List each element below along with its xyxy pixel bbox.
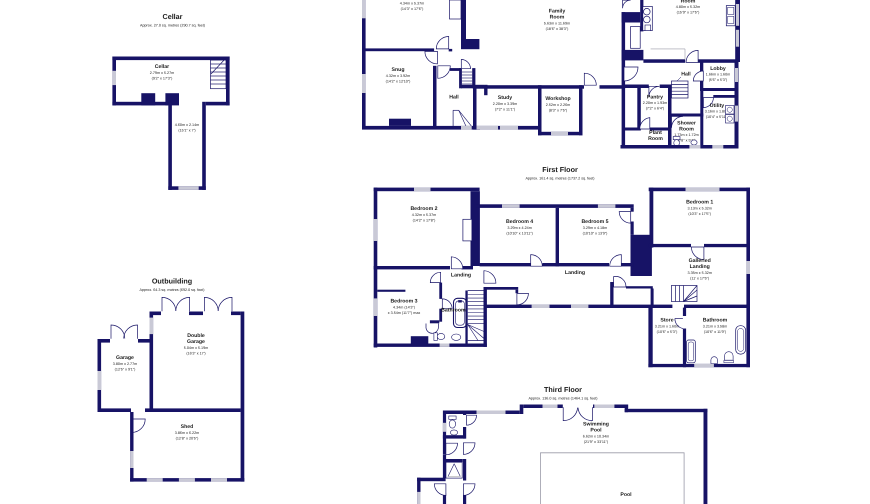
svg-text:Pool: Pool [590,428,602,434]
svg-text:Room: Room [681,0,696,5]
svg-text:5.04m x 5.19m: 5.04m x 5.19m [184,346,208,350]
svg-text:Hall: Hall [449,94,459,100]
svg-text:3.86m x 6.22m: 3.86m x 6.22m [175,431,199,435]
svg-text:Room: Room [550,15,565,21]
svg-text:Landing: Landing [451,273,471,279]
svg-text:Shed: Shed [181,424,194,430]
svg-text:(10'10" x 13'11"): (10'10" x 13'11") [506,232,533,236]
svg-text:(7'2" x 6'4"): (7'2" x 6'4") [646,107,665,111]
svg-text:3.35m x 5.32m: 3.35m x 5.32m [688,271,712,275]
svg-text:Bedroom 4: Bedroom 4 [506,219,533,225]
svg-text:Bathroom: Bathroom [441,308,466,314]
svg-text:Approx. 161.4 sq. metres (1737: Approx. 161.4 sq. metres (1737.2 sq. fee… [525,177,594,181]
svg-text:Utility: Utility [710,103,725,109]
svg-text:2.20m x 3.39m: 2.20m x 3.39m [493,102,517,106]
svg-text:2.52m x 2.26m: 2.52m x 2.26m [546,103,570,107]
svg-text:5.63m x 11.69m: 5.63m x 11.69m [544,22,570,26]
svg-text:(14'3" x 17'6"): (14'3" x 17'6") [401,7,424,11]
svg-text:(15'1" x 7'): (15'1" x 7') [178,129,195,133]
svg-text:Lobby: Lobby [710,66,726,72]
svg-text:4.32m x 3.92m: 4.32m x 3.92m [386,74,410,78]
svg-text:Garage: Garage [116,355,134,361]
svg-text:Landing: Landing [565,270,585,276]
svg-text:(8'3" x 7'5"): (8'3" x 7'5") [549,109,568,113]
svg-text:Third Floor: Third Floor [544,385,582,394]
svg-text:(11' x 17'5"): (11' x 17'5") [690,277,709,281]
svg-text:Store: Store [660,318,673,324]
svg-text:3.13m x 5.32m: 3.13m x 5.32m [688,207,712,211]
svg-text:(10'3" x 17'5"): (10'3" x 17'5") [688,212,711,216]
svg-text:4.34m (14'3"): 4.34m (14'3") [393,306,415,310]
svg-text:3.29m x 4.24m: 3.29m x 4.24m [507,226,531,230]
svg-text:3.80m x 2.77m: 3.80m x 2.77m [113,362,137,366]
svg-text:(9'2" x 17'3"): (9'2" x 17'3") [152,77,173,81]
svg-text:2.20m x 1.93m: 2.20m x 1.93m [643,101,667,105]
svg-text:(18'6" x 38'3"): (18'6" x 38'3") [546,27,569,31]
svg-text:First Floor: First Floor [542,165,578,174]
svg-text:Hall: Hall [681,72,691,78]
svg-text:4.32m x 5.37m: 4.32m x 5.37m [412,213,436,217]
svg-text:Snug: Snug [392,67,405,73]
svg-text:(10'6" x 11'9"): (10'6" x 11'9") [704,330,726,334]
svg-text:3.21m x 1.60m: 3.21m x 1.60m [655,325,679,329]
svg-text:Outbuilding: Outbuilding [152,277,192,286]
svg-text:Bedroom 3: Bedroom 3 [390,299,417,305]
svg-text:Bedroom 1: Bedroom 1 [686,200,713,206]
svg-text:1.66m x 1.60m: 1.66m x 1.60m [706,73,730,77]
svg-text:Approx. 64.3 sq. metres (692.0: Approx. 64.3 sq. metres (692.0 sq. feet) [140,288,205,292]
svg-text:Bedroom 2: Bedroom 2 [410,206,437,212]
svg-text:Approx. 27.0 sq. metres (290.7: Approx. 27.0 sq. metres (290.7 sq. feet) [140,24,205,28]
svg-text:6.62m x 10.34m: 6.62m x 10.34m [583,435,609,439]
svg-text:(7'2" x 11'1"): (7'2" x 11'1") [495,108,515,112]
svg-text:Bathroom: Bathroom [703,318,728,324]
svg-text:Study: Study [498,95,513,101]
svg-text:(14'2" x 17'8"): (14'2" x 17'8") [413,219,436,223]
svg-text:Workshop: Workshop [545,96,570,102]
svg-text:(10'6" x 5'3"): (10'6" x 5'3") [657,330,678,334]
svg-text:x 3.54m (11'7") max: x 3.54m (11'7") max [388,311,421,315]
svg-text:(10'4" x 5'11"): (10'4" x 5'11") [706,115,728,119]
svg-text:4.60m x 2.14m: 4.60m x 2.14m [175,123,199,127]
svg-text:(15'9" x 17'5"): (15'9" x 17'5") [677,11,700,15]
svg-text:(5'6" x 5'3"): (5'6" x 5'3") [709,78,728,82]
svg-text:2.79m x 5.27m: 2.79m x 5.27m [150,71,174,75]
svg-text:(12'5" x 9'1"): (12'5" x 9'1") [115,368,136,372]
svg-text:Bedroom 5: Bedroom 5 [581,219,608,225]
svg-text:(14'2" x 12'10"): (14'2" x 12'10") [386,80,411,84]
svg-text:(12'8" x 20'5"): (12'8" x 20'5") [176,437,199,441]
svg-text:Pantry: Pantry [647,95,663,101]
svg-text:4.34m x 5.37m: 4.34m x 5.37m [400,2,424,6]
svg-text:4.80m x 5.32m: 4.80m x 5.32m [676,5,700,9]
svg-text:Room: Room [679,127,694,133]
svg-text:(10'10" x 13'9"): (10'10" x 13'9") [583,232,608,236]
svg-text:Cellar: Cellar [163,12,183,21]
svg-text:Approx. 136.0 sq. metres (1464: Approx. 136.0 sq. metres (1464.1 sq. fee… [528,397,597,401]
svg-text:3.21m x 3.58m: 3.21m x 3.58m [703,325,727,329]
svg-text:(21'9" x 33'11"): (21'9" x 33'11") [584,440,608,444]
svg-text:Garage: Garage [187,339,205,345]
svg-text:3.29m x 4.18m: 3.29m x 4.18m [583,226,607,230]
svg-text:Landing: Landing [690,264,710,270]
svg-text:Cellar: Cellar [155,64,169,70]
svg-text:(16'3" x 17'): (16'3" x 17') [186,352,205,356]
svg-text:Room: Room [648,136,663,142]
svg-text:Pool: Pool [620,492,632,498]
